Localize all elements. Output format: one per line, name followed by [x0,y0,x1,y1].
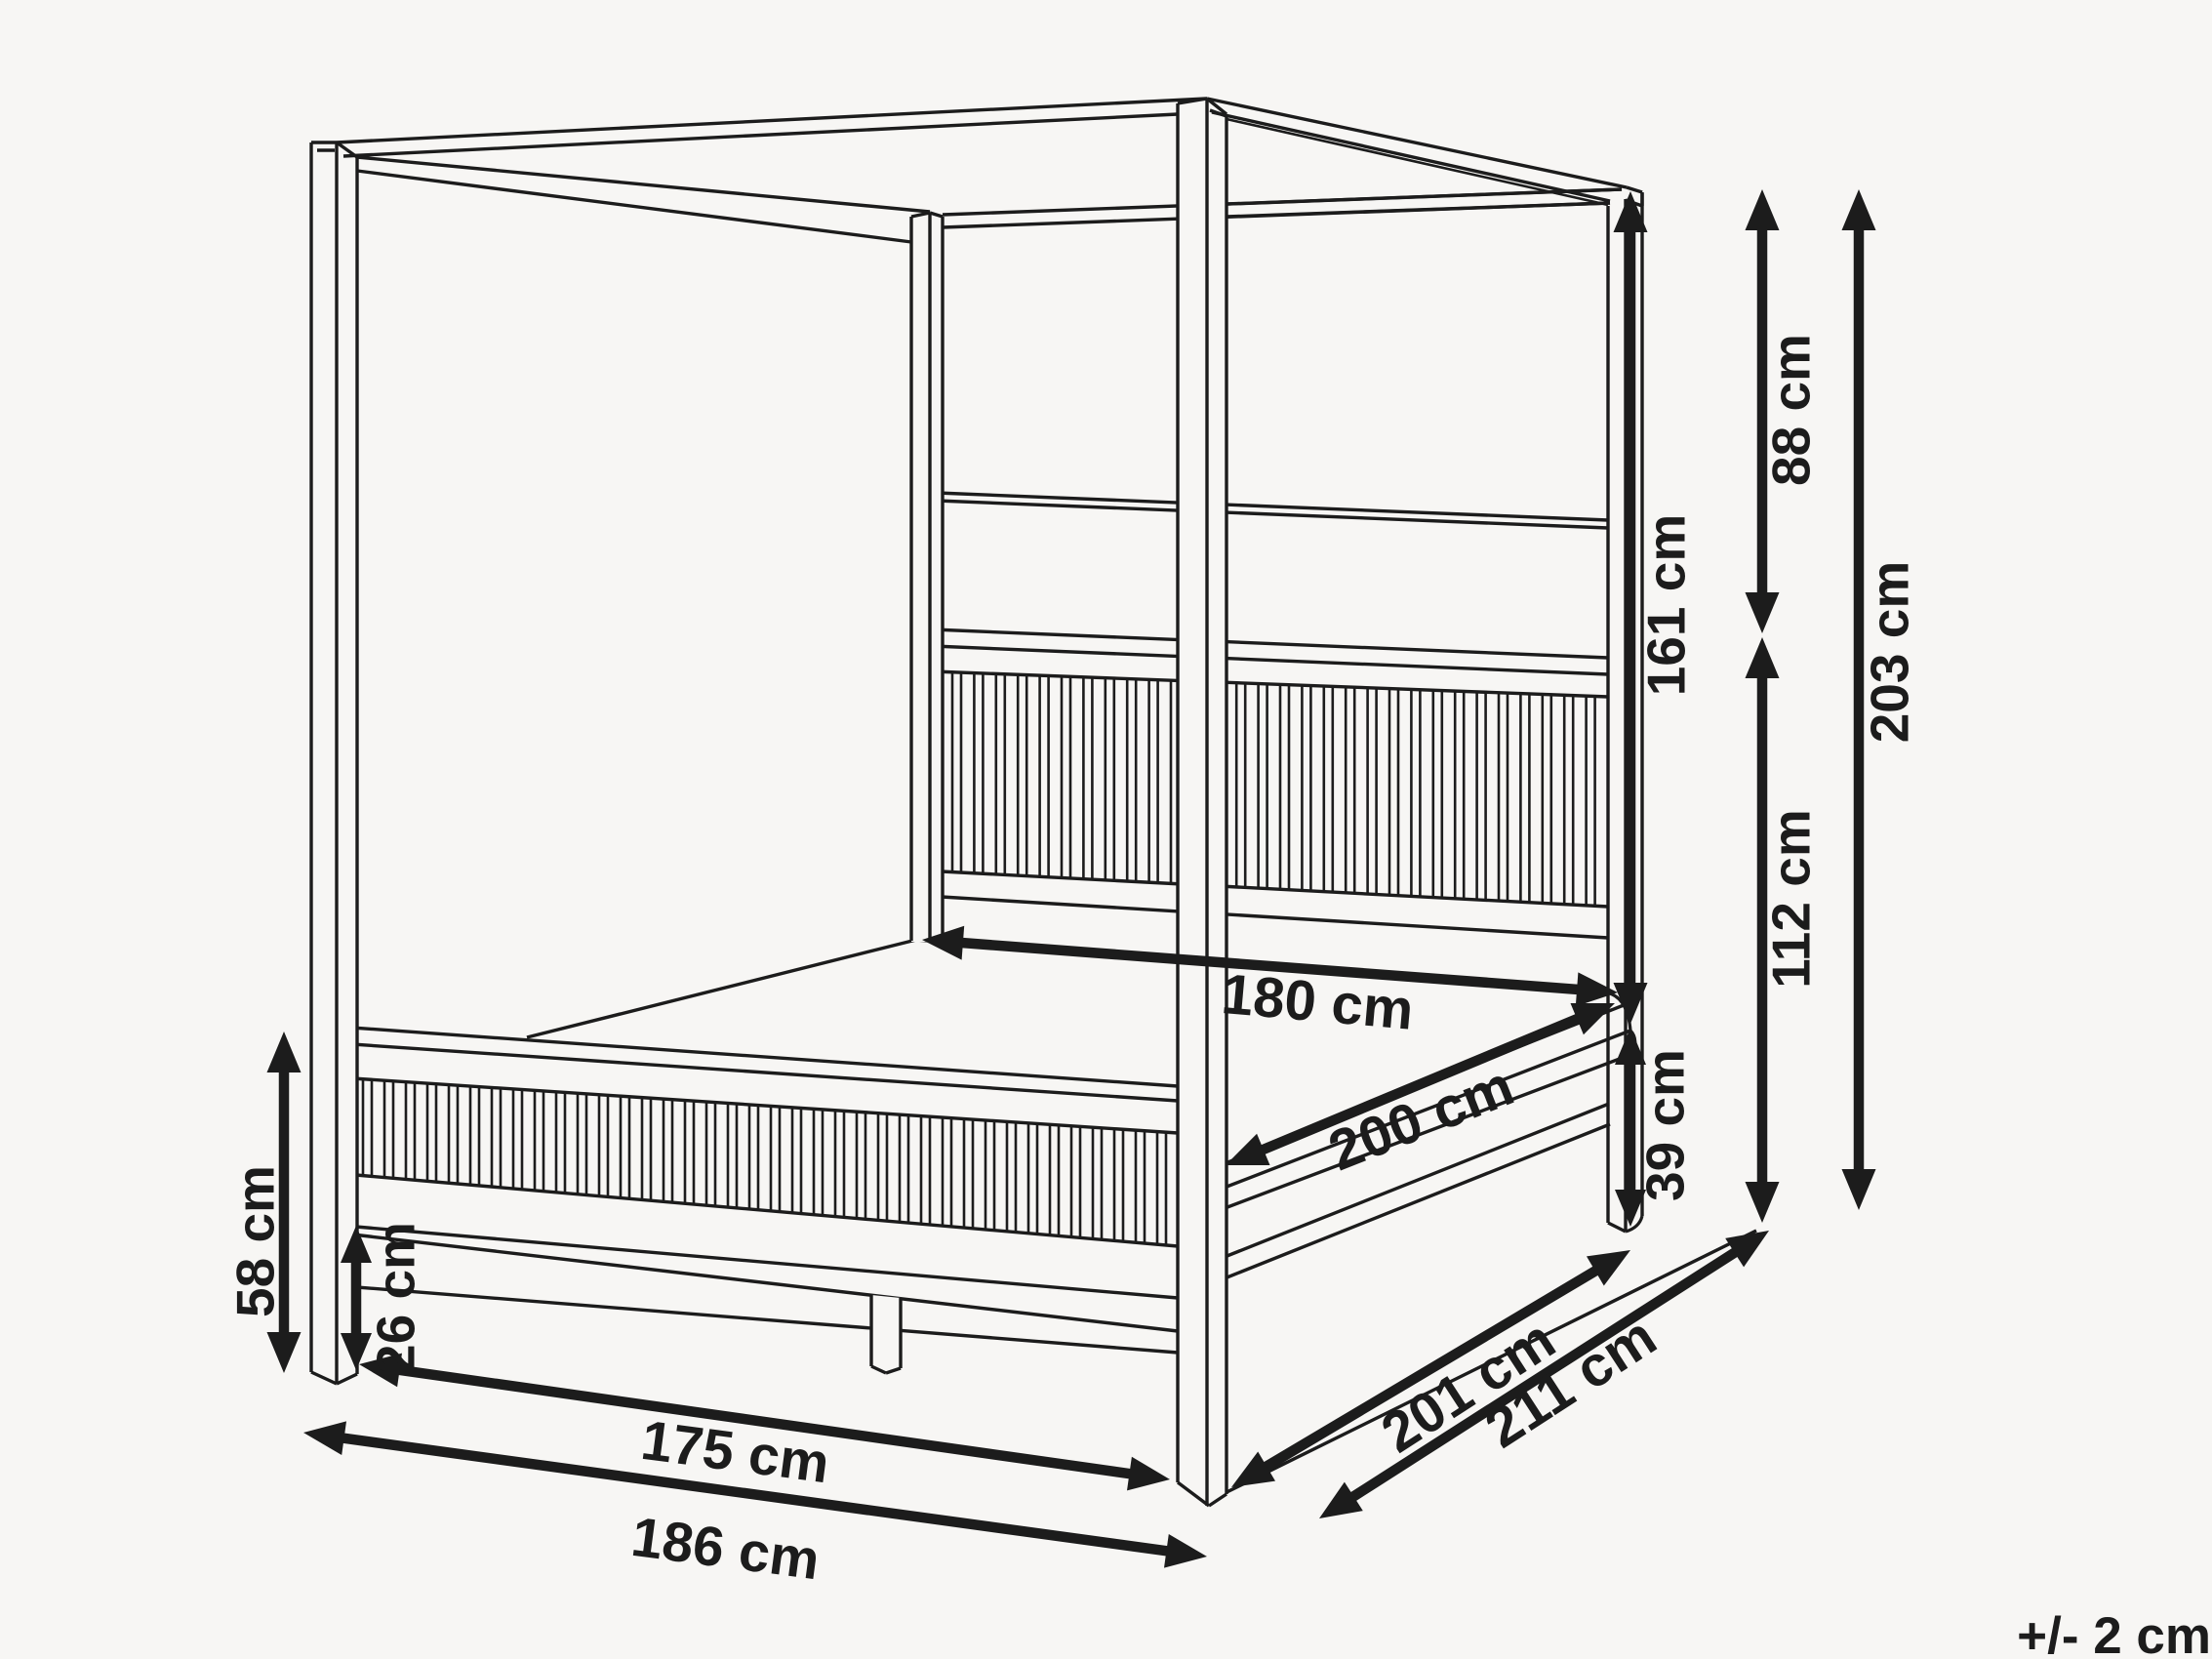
svg-text:+/- 2 cm: +/- 2 cm [2017,1607,2211,1659]
svg-text:26 cm: 26 cm [366,1222,426,1374]
svg-text:161 cm: 161 cm [1636,514,1697,697]
svg-text:203 cm: 203 cm [1860,561,1920,744]
svg-text:112 cm: 112 cm [1761,809,1822,989]
svg-text:88 cm: 88 cm [1761,334,1822,486]
svg-text:58 cm: 58 cm [225,1165,286,1317]
svg-text:39 cm: 39 cm [1635,1049,1696,1201]
